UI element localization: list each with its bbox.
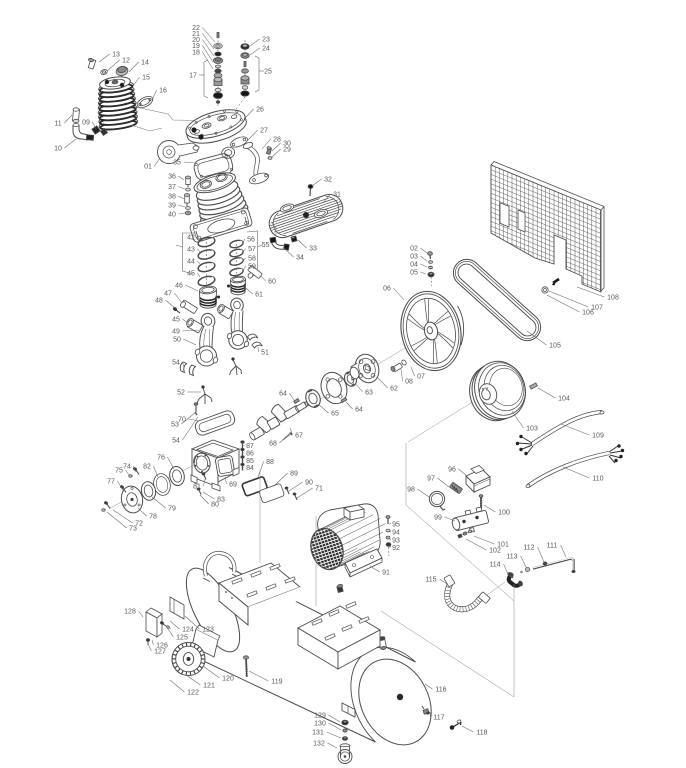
svg-text:89: 89 <box>290 470 298 477</box>
svg-text:56: 56 <box>247 236 255 243</box>
svg-text:38: 38 <box>168 193 176 200</box>
svg-text:102: 102 <box>489 547 501 554</box>
svg-text:45: 45 <box>172 316 180 323</box>
svg-text:45: 45 <box>187 270 195 277</box>
svg-text:116: 116 <box>435 686 446 693</box>
svg-text:107: 107 <box>591 304 603 311</box>
svg-text:119: 119 <box>271 678 282 685</box>
svg-text:132: 132 <box>313 740 325 747</box>
svg-text:20: 20 <box>192 37 200 44</box>
svg-text:129: 129 <box>314 712 326 719</box>
svg-text:58: 58 <box>248 255 256 262</box>
svg-text:09: 09 <box>82 119 90 126</box>
svg-text:82: 82 <box>143 463 151 470</box>
svg-text:78: 78 <box>149 513 157 520</box>
svg-text:96: 96 <box>448 466 456 473</box>
svg-text:24: 24 <box>262 45 270 52</box>
svg-text:123: 123 <box>202 626 214 633</box>
svg-text:79: 79 <box>168 505 176 512</box>
svg-text:50: 50 <box>173 336 181 343</box>
svg-text:87: 87 <box>246 443 254 450</box>
svg-text:01: 01 <box>144 163 152 170</box>
svg-text:90: 90 <box>305 479 313 486</box>
svg-text:120: 120 <box>222 675 234 682</box>
svg-text:92: 92 <box>392 545 400 552</box>
svg-text:108: 108 <box>607 294 619 301</box>
svg-text:49: 49 <box>172 328 180 335</box>
svg-text:44: 44 <box>187 258 195 265</box>
svg-text:121: 121 <box>203 682 215 689</box>
svg-text:26: 26 <box>256 106 264 113</box>
svg-text:47: 47 <box>164 290 172 297</box>
svg-text:125: 125 <box>176 634 188 641</box>
svg-text:70: 70 <box>178 416 186 423</box>
svg-text:75: 75 <box>115 467 123 474</box>
svg-text:110: 110 <box>592 475 603 482</box>
svg-text:74: 74 <box>123 463 131 470</box>
svg-text:22: 22 <box>192 25 200 32</box>
svg-text:13: 13 <box>112 51 120 58</box>
svg-text:97: 97 <box>427 475 435 482</box>
svg-text:59: 59 <box>248 263 256 270</box>
svg-text:127: 127 <box>154 648 166 655</box>
svg-text:42: 42 <box>187 234 195 241</box>
svg-text:02: 02 <box>410 245 418 252</box>
svg-text:04: 04 <box>410 261 418 268</box>
svg-text:61: 61 <box>255 291 263 298</box>
svg-text:98: 98 <box>407 486 415 493</box>
svg-text:113: 113 <box>506 553 517 560</box>
svg-text:91: 91 <box>382 569 390 576</box>
svg-text:25: 25 <box>264 68 272 75</box>
svg-text:34: 34 <box>296 254 304 261</box>
svg-text:14: 14 <box>141 59 149 66</box>
svg-text:112: 112 <box>523 544 534 551</box>
svg-text:52: 52 <box>177 389 185 396</box>
svg-text:40: 40 <box>168 211 176 218</box>
svg-text:88: 88 <box>266 459 274 466</box>
svg-text:23: 23 <box>262 36 270 43</box>
svg-text:109: 109 <box>592 432 604 439</box>
svg-text:114: 114 <box>489 561 500 568</box>
svg-text:84: 84 <box>246 465 254 472</box>
svg-text:31: 31 <box>333 191 341 198</box>
svg-text:99: 99 <box>434 514 442 521</box>
svg-text:54: 54 <box>172 359 180 366</box>
svg-text:103: 103 <box>526 425 538 432</box>
svg-text:115: 115 <box>425 576 436 583</box>
svg-text:06: 06 <box>383 285 391 292</box>
svg-text:117: 117 <box>433 714 444 721</box>
svg-text:130: 130 <box>314 720 326 727</box>
svg-text:67: 67 <box>295 432 303 439</box>
svg-text:86: 86 <box>246 450 254 457</box>
svg-text:05: 05 <box>410 269 418 276</box>
svg-text:104: 104 <box>558 395 570 402</box>
svg-text:95: 95 <box>392 521 400 528</box>
svg-text:122: 122 <box>187 689 199 696</box>
svg-text:57: 57 <box>248 246 256 253</box>
svg-text:16: 16 <box>159 87 167 94</box>
svg-text:64: 64 <box>355 406 363 413</box>
svg-text:118: 118 <box>476 729 487 736</box>
svg-text:17: 17 <box>189 72 197 79</box>
svg-text:94: 94 <box>392 529 400 536</box>
svg-text:63: 63 <box>365 389 373 396</box>
svg-text:12: 12 <box>122 57 130 64</box>
svg-text:39: 39 <box>168 202 176 209</box>
svg-text:68: 68 <box>269 440 277 447</box>
svg-text:73: 73 <box>129 525 137 532</box>
svg-text:60: 60 <box>268 278 276 285</box>
svg-text:62: 62 <box>390 385 398 392</box>
svg-text:51: 51 <box>261 349 269 356</box>
svg-text:27: 27 <box>260 127 268 134</box>
svg-text:32: 32 <box>324 176 332 183</box>
svg-text:46: 46 <box>175 282 183 289</box>
svg-text:93: 93 <box>392 537 400 544</box>
svg-text:33: 33 <box>309 245 317 252</box>
svg-text:48: 48 <box>155 297 163 304</box>
svg-text:43: 43 <box>187 246 195 253</box>
svg-text:37: 37 <box>168 184 176 191</box>
svg-text:21: 21 <box>192 31 200 38</box>
svg-text:28: 28 <box>273 136 281 143</box>
svg-text:83: 83 <box>217 496 225 503</box>
svg-text:03: 03 <box>410 253 418 260</box>
svg-text:15: 15 <box>142 74 150 81</box>
svg-text:124: 124 <box>182 626 194 633</box>
svg-text:19: 19 <box>192 43 200 50</box>
svg-text:64: 64 <box>279 390 287 397</box>
svg-text:55: 55 <box>262 242 270 249</box>
svg-text:11: 11 <box>54 120 61 127</box>
svg-text:08: 08 <box>405 378 413 385</box>
svg-text:65: 65 <box>331 410 339 417</box>
svg-text:85: 85 <box>246 458 254 465</box>
svg-text:35: 35 <box>173 159 181 166</box>
svg-text:29: 29 <box>283 146 291 153</box>
svg-text:69: 69 <box>229 481 237 488</box>
svg-text:10: 10 <box>54 145 62 152</box>
svg-text:76: 76 <box>157 454 165 461</box>
svg-text:128: 128 <box>124 608 136 615</box>
svg-text:111: 111 <box>547 542 558 549</box>
svg-text:81: 81 <box>193 483 201 490</box>
svg-text:71: 71 <box>315 485 323 492</box>
svg-text:100: 100 <box>498 509 510 516</box>
svg-text:105: 105 <box>549 342 561 349</box>
svg-text:36: 36 <box>168 173 176 180</box>
svg-text:131: 131 <box>312 729 324 736</box>
svg-text:77: 77 <box>107 478 115 485</box>
svg-text:07: 07 <box>417 373 425 380</box>
svg-text:54: 54 <box>172 437 180 444</box>
svg-text:18: 18 <box>192 49 200 56</box>
svg-text:30: 30 <box>283 140 291 147</box>
